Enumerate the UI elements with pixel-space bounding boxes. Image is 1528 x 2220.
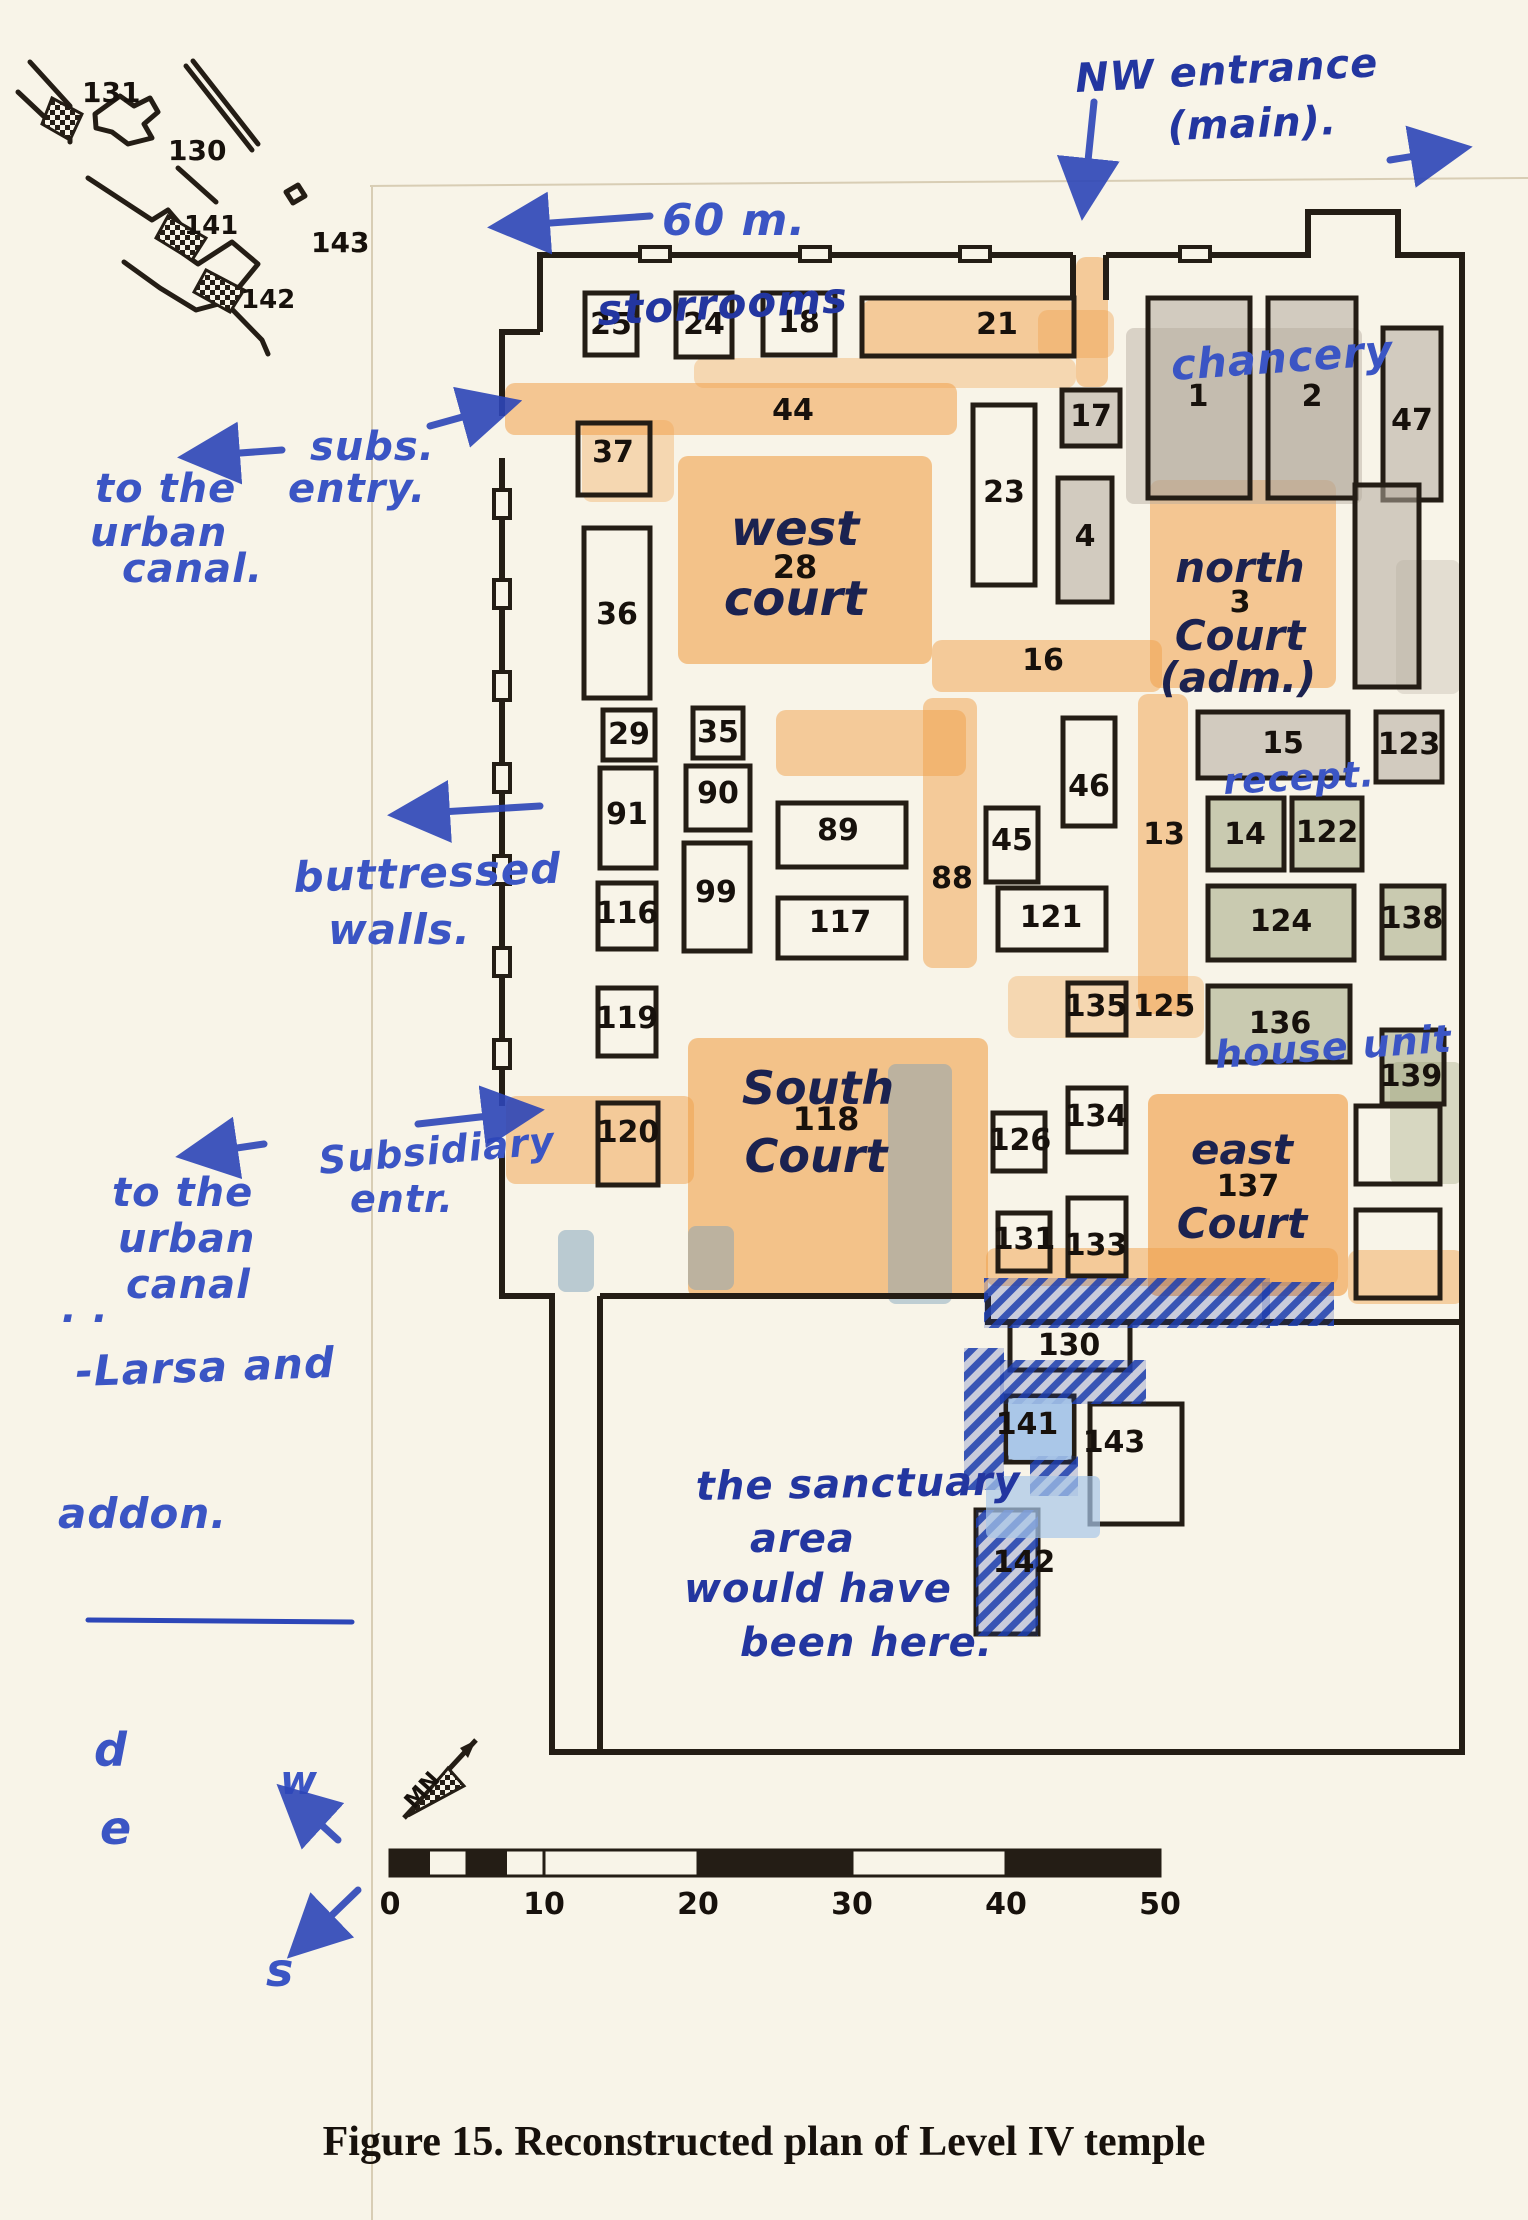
room-number-134: 134 [1065, 1099, 1128, 1134]
ink-arrow [1390, 150, 1452, 160]
room-number-141: 141 [996, 1407, 1059, 1442]
scale-tick-label: 40 [985, 1887, 1027, 1922]
inset-room-label: 131 [82, 76, 140, 109]
handwritten-note: canal [126, 1262, 251, 1308]
handwritten-note: canal. [122, 546, 263, 592]
handwritten-note: the sanctuary [695, 1458, 1022, 1510]
wall-buttress-notch [494, 764, 510, 792]
room-number-122: 122 [1296, 815, 1359, 850]
wall-buttress-notch [494, 490, 510, 518]
sanctuary-ink-hatch [1262, 1282, 1334, 1326]
handwritten-note: to the [112, 1170, 253, 1216]
handwritten-note: would have [684, 1566, 952, 1612]
orange-crayon-patch [1138, 694, 1188, 1014]
room-number-15: 15 [1262, 726, 1304, 761]
handwritten-note: d [94, 1723, 128, 1777]
ink-arrow [1084, 102, 1094, 200]
inset-room-label: 142 [241, 285, 295, 315]
compass-mn-label: MN [400, 1767, 446, 1814]
room-number-4: 4 [1075, 519, 1096, 554]
wall-buttress-notch [494, 580, 510, 608]
blue-gray-streak [888, 1064, 952, 1304]
court-label: Court [745, 1129, 890, 1183]
room-number-133: 133 [1065, 1228, 1128, 1263]
handwritten-note: e [100, 1801, 132, 1855]
handwritten-note: urban [118, 1216, 255, 1262]
blue-gray-streak [558, 1230, 594, 1292]
scale-bar-block [467, 1850, 506, 1876]
room-number-123: 123 [1378, 727, 1441, 762]
room-number-23: 23 [983, 475, 1025, 510]
blue-hatch-layer [964, 1278, 1334, 1636]
room-number-116: 116 [596, 896, 659, 931]
room-number-120: 120 [597, 1115, 660, 1150]
room-number-17: 17 [1070, 399, 1112, 434]
room-number-121: 121 [1020, 900, 1083, 935]
scale-bar-block [429, 1850, 468, 1876]
handwritten-note: been here. [740, 1620, 993, 1666]
wall-buttress-notch [800, 247, 830, 261]
handwritten-note: -Larsa and [75, 1338, 336, 1396]
handwritten-note: 60 m. [662, 195, 806, 246]
room-number-16: 16 [1022, 643, 1064, 678]
inset-room-label: 143 [311, 226, 369, 259]
wall-buttress-notch [640, 247, 670, 261]
scale-tick-label: 0 [380, 1887, 401, 1922]
handwritten-note: · · [60, 1296, 107, 1342]
ink-arrow [196, 1144, 264, 1154]
scale-bar-block [506, 1850, 545, 1876]
room-number-99: 99 [695, 875, 737, 910]
inset-hatched-block [194, 270, 244, 312]
scale-bar-block [390, 1850, 429, 1876]
room-number-47: 47 [1391, 403, 1433, 438]
court-label: court [724, 571, 868, 627]
scale-tick-label: 10 [523, 1887, 565, 1922]
handwritten-note: entr. [350, 1177, 454, 1221]
room-number-35: 35 [697, 715, 739, 750]
scale-bar-block [544, 1850, 698, 1876]
inset-hatched-block [42, 98, 82, 140]
room-outline [1355, 485, 1419, 687]
ink-arrow [430, 406, 502, 426]
room-number-89: 89 [817, 813, 859, 848]
orange-crayon-patch [776, 710, 966, 776]
site-inset-map: 131130141142143 [18, 61, 369, 354]
court-label: (adm.) [1160, 653, 1317, 702]
ink-arrow [302, 1890, 358, 1944]
room-number-126: 126 [989, 1123, 1052, 1158]
wall-buttress-notch [494, 672, 510, 700]
room-number-135: 135 [1065, 989, 1128, 1024]
sanctuary-ink-hatch [984, 1278, 1270, 1328]
ink-arrow [508, 216, 650, 226]
room-number-36: 36 [596, 597, 638, 632]
room-number-44: 44 [772, 393, 814, 428]
room-number-13: 13 [1143, 817, 1185, 852]
handwritten-note: subs. [310, 424, 435, 470]
north-compass: MN [400, 1740, 476, 1818]
handwritten-note: (main). [1167, 98, 1338, 150]
room-number-45: 45 [991, 823, 1033, 858]
wall-buttress-notch [494, 948, 510, 976]
ink-arrow [408, 806, 540, 814]
handwritten-note: to the [95, 466, 236, 512]
handwritten-note: NW entrance [1074, 40, 1379, 102]
inset-sketch-line [178, 168, 216, 202]
handwritten-note: buttressed [293, 844, 562, 902]
handwritten-note: entry. [288, 466, 426, 512]
room-number-14: 14 [1224, 817, 1266, 852]
scale-tick-label: 30 [831, 1887, 873, 1922]
room-number-88: 88 [931, 861, 973, 896]
handwritten-note: s [266, 1943, 294, 1997]
court-label: Court [1177, 1199, 1309, 1248]
room-number-138: 138 [1381, 901, 1444, 936]
scale-tick-label: 20 [677, 1887, 719, 1922]
ink-arrow [198, 450, 282, 456]
handwritten-note: w [280, 1758, 318, 1804]
handwritten-note: addon. [58, 1489, 227, 1538]
room-number-124: 124 [1250, 904, 1313, 939]
blue-gray-streak [688, 1226, 734, 1290]
room-number-90: 90 [697, 776, 739, 811]
ink-arrow [292, 1798, 338, 1840]
room-number-119: 119 [596, 1001, 659, 1036]
room-number-21: 21 [976, 307, 1018, 342]
scale-tick-label: 50 [1139, 1887, 1181, 1922]
room-number-131: 131 [993, 1222, 1056, 1257]
orange-crayon-patch [505, 383, 957, 435]
room-number-117: 117 [809, 905, 872, 940]
orange-crayon-patch [694, 358, 1076, 388]
room-number-125: 125 [1133, 989, 1196, 1024]
figure-caption: Figure 15. Reconstructed plan of Level I… [0, 2118, 1528, 2166]
room-number-91: 91 [606, 797, 648, 832]
wall-buttress-notch [1180, 247, 1210, 261]
room-number-37: 37 [592, 435, 634, 470]
room-outline-143 [1090, 1404, 1182, 1524]
room-number-29: 29 [608, 717, 650, 752]
scanned-figure-page: 131130141142143 252418213736231712474293… [0, 0, 1528, 2220]
room-number-143: 143 [1083, 1425, 1146, 1460]
room-number-142: 142 [993, 1545, 1056, 1580]
inset-room-label: 141 [184, 211, 238, 241]
wall-buttress-notch [960, 247, 990, 261]
temple-plan-drawing: 131130141142143 252418213736231712474293… [0, 0, 1528, 2220]
scale-bar-block [1006, 1850, 1160, 1876]
handwritten-note: area [750, 1516, 855, 1562]
sanctuary-ink-hatch [1000, 1360, 1146, 1404]
room-number-130: 130 [1038, 1328, 1101, 1363]
ink-rule-line [88, 1620, 352, 1622]
handwritten-note: recept. [1222, 754, 1376, 803]
handwritten-note: walls. [328, 905, 471, 954]
inset-room-label: 130 [168, 134, 226, 167]
wall-buttress-notch [494, 1040, 510, 1068]
inset-sketch-line [286, 185, 305, 203]
scale-bar: 01020304050 [380, 1850, 1181, 1922]
room-number-46: 46 [1068, 769, 1110, 804]
scale-bar-block [852, 1850, 1006, 1876]
paper-crease-horizontal [370, 178, 1528, 186]
room-number-2: 2 [1302, 379, 1323, 414]
scale-bar-block [698, 1850, 852, 1876]
court-label: east [1191, 1125, 1295, 1174]
